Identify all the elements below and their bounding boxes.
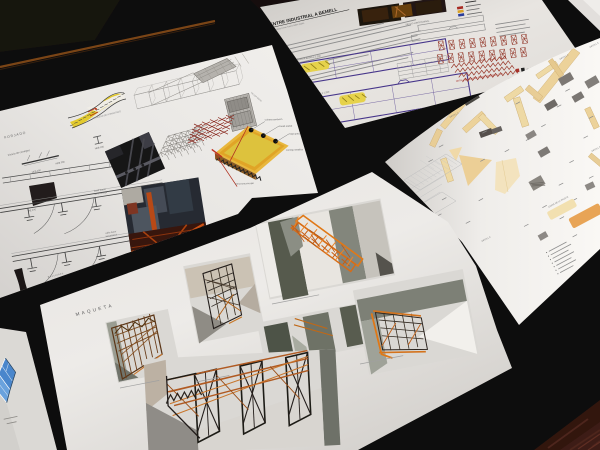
svg-text:Panell acabat: Panell acabat xyxy=(279,125,293,128)
